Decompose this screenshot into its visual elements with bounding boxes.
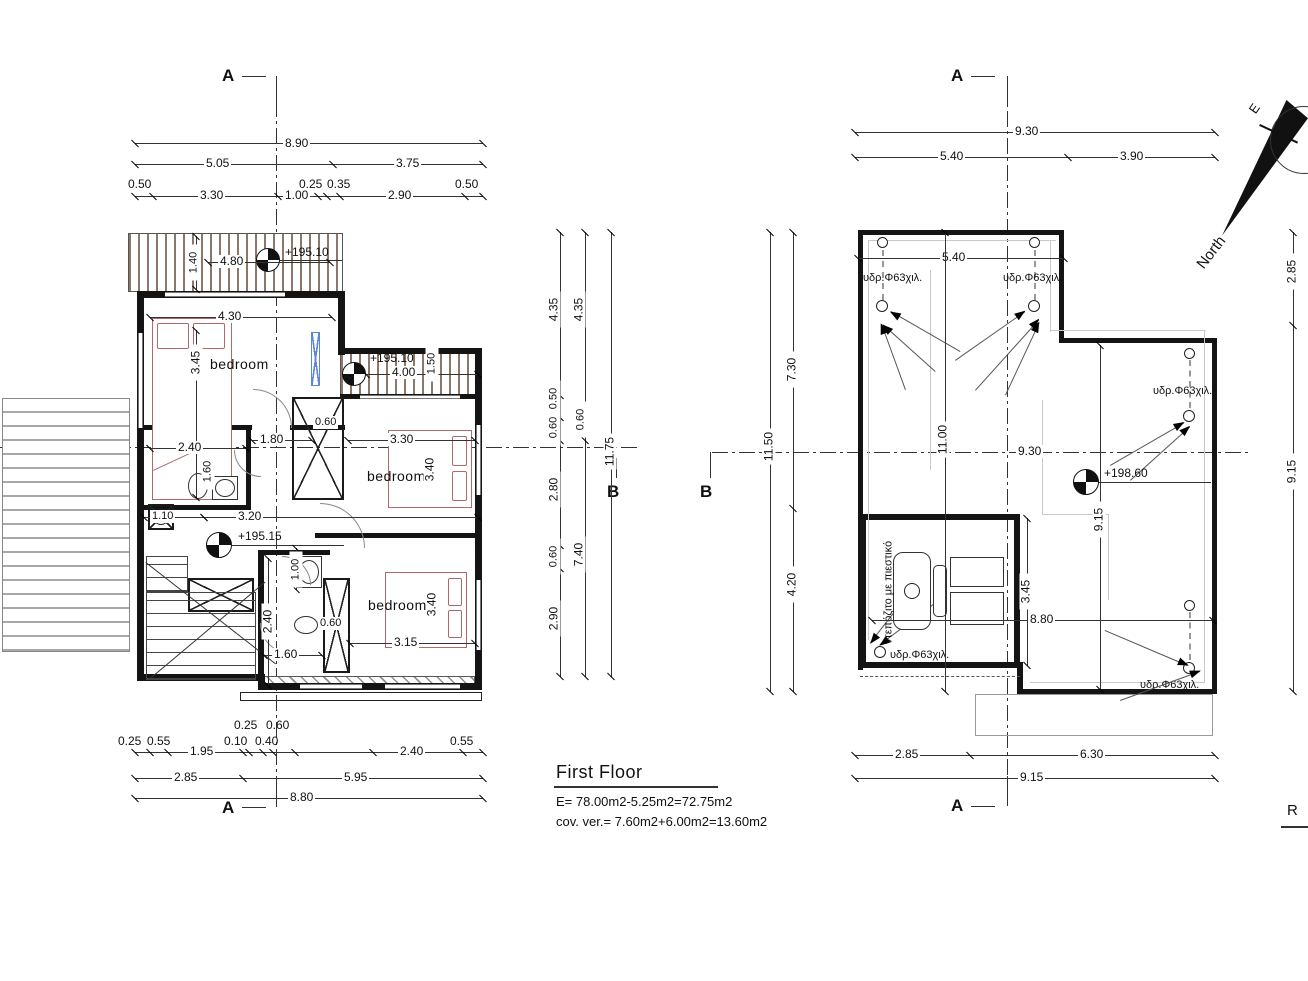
dim-seg: 0.60 (266, 719, 289, 732)
tankroom-hidden-edge (860, 676, 1020, 677)
dim-bath1-height: 1.60 (202, 454, 215, 490)
level-line (232, 545, 344, 546)
roof-title-partial: R (1287, 804, 1298, 817)
section-marker-b-left: B (607, 482, 619, 502)
terrace-edge (240, 692, 482, 701)
dim-balcony2-width: 4.00 (390, 366, 417, 379)
tankroom-wall-left (860, 514, 866, 668)
dim-seg: 7.30 (786, 352, 799, 388)
dim-seg: 0.35 (327, 178, 350, 191)
dim-seg: 0.25 (234, 719, 257, 732)
door-arc-bath1 (234, 450, 261, 477)
slope-arrow (1110, 423, 1184, 466)
downpipe-drain (876, 300, 888, 312)
section-elbow (242, 807, 266, 808)
wall-right-upper (338, 291, 345, 355)
dim-total-top: 8.90 (283, 137, 310, 150)
dim-seg: 5.05 (204, 157, 231, 170)
pillow (448, 610, 462, 638)
dim-seg: 4.35 (573, 292, 586, 328)
dim-seg: 2.90 (386, 189, 413, 202)
dim-roof-mid-height: 9.15 (1093, 502, 1106, 538)
window-bottom-wall-2 (385, 684, 460, 689)
title-underline (554, 786, 718, 788)
dim-bath1-width: 2.40 (176, 441, 203, 454)
dim-balcony2-depth: 1.50 (426, 346, 439, 382)
dim-seg: 0.50 (128, 178, 151, 191)
section-marker-a-top-right: A (951, 66, 963, 86)
pillow (448, 578, 462, 606)
veranda-edge-below (975, 694, 1213, 736)
sink-bowl-bath1 (215, 479, 235, 497)
downpipe-label: υδρ.Φ63χιλ. (863, 272, 922, 285)
dim-seg: 9.15 (1286, 454, 1299, 490)
dim-bedroom3-height: 3.40 (426, 587, 439, 623)
level-marker-balcony-right (342, 362, 366, 386)
coverage-calculation: cov. ver.= 7.60m2+6.00m2=13.60m2 (556, 815, 767, 828)
dim-seg: 4.20 (786, 567, 799, 603)
dim-seg: 0.60 (548, 410, 561, 446)
pillow (157, 323, 189, 349)
dim-seg: 0.55 (147, 735, 170, 748)
dim-bedroom3-width: 3.15 (392, 636, 419, 649)
dim-chimney: 1.10 (150, 510, 175, 523)
dim-total-bottom: 9.15 (1018, 771, 1045, 784)
level-value-hall: +195.15 (238, 530, 282, 543)
dim-bedroom2-height: 3.40 (424, 452, 437, 488)
dim-bath2-width: 1.60 (272, 648, 299, 661)
section-marker-a-bottom-left: A (222, 798, 234, 818)
dim-seg: 0.60 (575, 402, 588, 438)
section-elbow (971, 806, 995, 807)
section-elbow (276, 780, 277, 807)
section-elbow (1007, 776, 1008, 806)
roof-inner-line (1050, 330, 1206, 331)
window-left-wall (138, 333, 143, 428)
dim-seg: 2.85 (172, 771, 199, 784)
door-arc-bedroom2 (320, 503, 365, 548)
dim-door-width: 1.00 (290, 552, 303, 588)
section-elbow (971, 76, 995, 77)
dim-seg: 2.80 (548, 472, 561, 508)
dim-roof-left-height: 11.00 (937, 422, 950, 458)
dim-closet2-depth: 0.60 (318, 617, 343, 630)
dim-bath2-height: 2.40 (262, 604, 275, 640)
roof-slope-line (1108, 514, 1109, 600)
roof-inner-line (1050, 240, 1051, 332)
level-line (1099, 482, 1211, 483)
dim-total-height: 11.75 (604, 434, 617, 470)
east-label: E (1247, 101, 1263, 116)
room-label-bedroom1: bedroom (210, 356, 269, 372)
level-marker-balcony-top (256, 248, 280, 272)
level-marker-roof (1073, 469, 1099, 495)
section-marker-b-right: B (700, 482, 712, 502)
dim-seg: 4.35 (548, 292, 561, 328)
plan-title: First Floor (556, 762, 643, 783)
dim-tankroom-height: 3.45 (1020, 574, 1033, 610)
tank-label: ντεπόζιτο με πιεστικό (883, 538, 896, 648)
room-label-bedroom3: bedroom (368, 597, 427, 613)
dim-total-bottom: 8.80 (288, 791, 315, 804)
window-right-wall-1 (476, 425, 481, 495)
north-label: North (1195, 234, 1228, 271)
dim-line (855, 157, 1215, 158)
door-arc-bedroom1 (253, 389, 292, 428)
dim-seg: 2.85 (893, 748, 920, 761)
roof-inner-line (868, 240, 1056, 241)
dim-seg: 3.75 (394, 157, 421, 170)
dim-seg: 1.95 (188, 745, 215, 758)
dim-line (945, 232, 946, 692)
roof-wall-top (858, 230, 1064, 235)
stairs-upper (146, 556, 188, 592)
dim-total-left: 11.50 (763, 429, 776, 465)
level-value-balcony-top: +195.10 (285, 246, 329, 259)
slope-arrow (891, 311, 961, 352)
section-elbow (1007, 76, 1008, 106)
roof-slope-line (930, 270, 931, 470)
downpipe-circle (1184, 348, 1195, 359)
solar-panel (950, 557, 1004, 587)
dim-bedroom2-width: 3.30 (388, 433, 415, 446)
slope-arrow (955, 311, 1025, 361)
tank-cap (904, 583, 920, 599)
downpipe-circle (1184, 600, 1195, 611)
section-elbow (710, 452, 711, 478)
dim-seg: 3.30 (198, 189, 225, 202)
pillow (452, 471, 467, 501)
roof-wall-step-h (1059, 338, 1217, 343)
downpipe-run (1189, 360, 1191, 408)
lower-roof-pergola (2, 398, 130, 652)
dim-balcony-depth: 1.40 (188, 245, 201, 281)
dim-closet-depth: 0.60 (313, 416, 338, 429)
dim-seg: 7.40 (573, 537, 586, 573)
dim-seg: 0.10 (224, 735, 247, 748)
dim-seg: 3.90 (1118, 150, 1145, 163)
dim-seg: 0.25 (118, 735, 141, 748)
dim-seg: 0.60 (548, 539, 561, 575)
downpipe-label: υδρ.Φ63χιλ. (1003, 272, 1062, 285)
dim-seg: 5.40 (938, 150, 965, 163)
dim-seg: 0.50 (455, 178, 478, 191)
dim-hall2-width: 3.20 (236, 510, 263, 523)
dim-total-top: 9.30 (1013, 125, 1040, 138)
dim-roof-low-width: 8.80 (1028, 613, 1055, 626)
dim-seg: 0.55 (450, 735, 473, 748)
slope-arrow (1105, 630, 1188, 666)
downpipe-label: υδρ.Φ63χιλ. (890, 649, 949, 662)
roof-inner-line (1204, 330, 1205, 682)
dim-seg: 2.90 (548, 601, 561, 637)
window-top-wall (165, 292, 285, 297)
downpipe-label: υδρ.Φ63χιλ. (1153, 385, 1212, 398)
section-elbow (242, 76, 266, 77)
tankroom-wall-top (860, 514, 1020, 520)
section-elbow (276, 76, 277, 106)
roof-wall-step-v (1059, 230, 1064, 342)
dim-seg: 2.85 (1286, 254, 1299, 290)
section-line-a-right (1007, 100, 1008, 775)
roof-title-underline (1281, 826, 1308, 828)
downpipe-drain (1028, 300, 1040, 312)
dim-seg: 2.40 (398, 745, 425, 758)
section-marker-a-top-left: A (222, 66, 234, 86)
area-calculation: E= 78.00m2-5.25m2=72.75m2 (556, 795, 732, 808)
downpipe-circle (1029, 237, 1040, 248)
closet-shaft (292, 397, 344, 500)
window-bottom-wall-1 (300, 684, 362, 689)
dim-hall-width: 1.80 (258, 433, 285, 446)
tankroom-wall-bottom (860, 662, 1020, 668)
dim-line (135, 164, 483, 165)
toilet-bath2 (294, 616, 318, 634)
dim-line (793, 232, 794, 692)
dim-seg: 0.25 (299, 178, 322, 191)
level-marker-hall (206, 532, 232, 558)
dim-bedroom1-width: 4.30 (216, 310, 243, 323)
room-label-bedroom2: bedroom (367, 468, 426, 484)
roof-inner-line (868, 240, 869, 640)
downpipe-drain (1183, 410, 1195, 422)
dim-roof-mid-width: 9.30 (1016, 445, 1043, 458)
window-wing-wall (360, 395, 460, 399)
dim-line (366, 374, 478, 375)
dim-seg: 0.40 (255, 735, 278, 748)
window-symbol (311, 332, 320, 386)
drawing-sheet: A A A A B B (0, 0, 1308, 981)
level-line (280, 260, 342, 261)
dim-seg: 6.30 (1078, 748, 1105, 761)
slope-arrow (1005, 322, 1040, 395)
downpipe-circle (877, 237, 888, 248)
window-right-wall-2 (476, 580, 481, 650)
section-marker-a-bottom-right: A (951, 796, 963, 816)
roof-wall-right (1212, 338, 1217, 694)
level-value-roof: +198.60 (1104, 467, 1148, 480)
level-value-balcony-right: +195.10 (370, 352, 414, 365)
dim-bedroom1-height: 3.45 (190, 345, 203, 381)
dim-balcony-width: 4.80 (218, 255, 245, 268)
dim-seg: 5.95 (342, 771, 369, 784)
